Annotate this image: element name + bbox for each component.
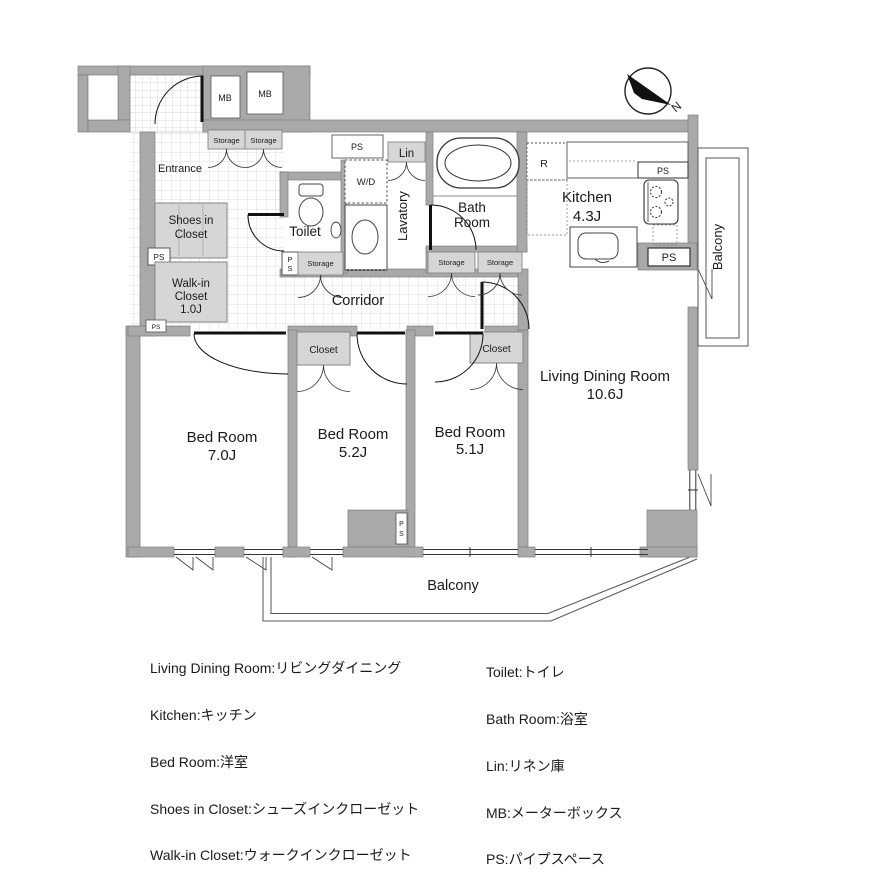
lin-label: Lin (399, 148, 414, 160)
bed1-door-arc (194, 334, 288, 374)
hand-basin (331, 222, 341, 238)
shoes-closet-label-2: Closet (175, 229, 208, 241)
wall-left (140, 132, 155, 330)
legend-item: Living Dining Room:リビングダイニング (150, 661, 419, 677)
storage-label: Storage (487, 258, 513, 267)
entrance-porch-floor (130, 75, 203, 132)
balcony-bottom-outer (263, 557, 697, 621)
ps-p: P (399, 521, 404, 528)
ps-p: P (287, 255, 292, 264)
legend-item: PS:パイプスペース (486, 852, 622, 868)
shoes-closet-label-1: Shoes in (169, 215, 214, 227)
bed1-label-1: Bed Room (187, 429, 258, 446)
ldr-label-2: 10.6J (587, 386, 624, 403)
toilet-label: Toilet (289, 224, 321, 239)
legend-item: Kitchen:キッチン (150, 708, 419, 724)
hall-floor (230, 132, 284, 273)
bath-label-1: Bath (458, 200, 486, 215)
bath-room: Bath Room (433, 138, 519, 230)
balcony-bottom-inner (271, 557, 689, 614)
kitchen-label-2: 4.3J (573, 208, 601, 225)
wall (88, 120, 130, 132)
wall-bottom (343, 547, 423, 557)
wall-bottom (640, 547, 697, 557)
closet-label: Closet (309, 345, 338, 356)
legend-item: Bed Room:洋室 (150, 755, 419, 771)
counter-dashed (653, 225, 677, 245)
window-bed2 (310, 550, 343, 555)
alcove (88, 75, 118, 120)
closet-doors-arc (297, 365, 350, 392)
compass: N (625, 68, 684, 115)
storage-label: Storage (307, 259, 333, 268)
window-flap (698, 474, 711, 506)
window-bed3-sliding (423, 547, 518, 557)
wall-left-lower (126, 330, 140, 557)
wall-toilet-left (280, 172, 288, 217)
wall-bath-left-upper (426, 132, 433, 205)
entrance-label: Entrance (158, 163, 202, 175)
wall-bottom (518, 547, 535, 557)
window-ldr-sliding (535, 547, 648, 557)
ldr-label-1: Living Dining Room (540, 368, 670, 385)
balcony-bottom-label: Balcony (427, 578, 479, 594)
ps-label: PS (154, 253, 165, 262)
wall-right-lower (688, 307, 698, 470)
walkin-label-3: 1.0J (180, 304, 202, 316)
linen-doors-arc (388, 162, 425, 181)
wall (78, 75, 88, 132)
closet-label: Closet (482, 344, 511, 355)
toilet-room: Toilet (289, 184, 341, 239)
window-bed1-right (244, 550, 283, 555)
legend-item: Shoes in Closet:シューズインクローゼット (150, 802, 419, 818)
lavatory-sink (352, 220, 378, 254)
wall-bottom (283, 547, 310, 557)
wall-toilet-top (280, 172, 347, 180)
compass-arrow-icon (627, 74, 671, 105)
window-flap (312, 557, 332, 570)
hall-storages: Storage Storage (208, 130, 282, 149)
walkin-label-1: Walk-in (172, 278, 210, 290)
lavatory-label: Lavatory (395, 191, 410, 241)
mb-1-label: MB (218, 93, 232, 103)
window-flap (196, 557, 213, 570)
compass-n-label: N (669, 99, 685, 115)
legend-item: Lin:リネン庫 (486, 759, 622, 775)
legend-left-column: Living Dining Room:リビングダイニング Kitchen:キッチ… (150, 630, 419, 872)
legend-item: Toilet:トイレ (486, 665, 622, 681)
ps-s: S (399, 531, 404, 538)
legend-item: Walk-in Closet:ウォークインクローゼット (150, 848, 419, 864)
wall-bath-right (517, 132, 527, 252)
wall-bed1-bed2 (288, 330, 297, 557)
storage-label: Storage (438, 258, 464, 267)
bed2-label-1: Bed Room (318, 426, 389, 443)
mb-2-label: MB (258, 89, 272, 99)
bed3-label-2: 5.1J (456, 441, 484, 458)
fridge-label: R (540, 158, 548, 170)
wall-bottom (128, 547, 174, 557)
storage-label: Storage (213, 136, 239, 145)
wall-bottom (215, 547, 244, 557)
ps-label: PS (351, 142, 363, 152)
ps-s: S (287, 264, 292, 273)
kitchen-label-1: Kitchen (562, 189, 612, 206)
window-ldr-side (688, 470, 698, 510)
bed1-label-2: 7.0J (208, 447, 236, 464)
bathtub-inner (445, 145, 511, 181)
corridor-label: Corridor (332, 293, 385, 309)
walkin-label-2: Closet (175, 291, 208, 303)
bath-label-2: Room (454, 215, 490, 230)
ps-label: PS (662, 252, 677, 264)
wd-label: W/D (357, 177, 376, 188)
storage-label: Storage (250, 136, 276, 145)
kitchen: R PS PS Kitchen 4.3J (527, 142, 690, 267)
legend-right-column: Toilet:トイレ Bath Room:浴室 Lin:リネン庫 MB:メーター… (486, 634, 622, 872)
ps-label: PS (152, 324, 161, 331)
legend-item: Bath Room:浴室 (486, 712, 622, 728)
ps-label: PS (657, 166, 669, 176)
closet-doors-arc (470, 363, 523, 390)
window-flap (176, 557, 193, 570)
bed3-label-1: Bed Room (435, 424, 506, 441)
wall-bath-bottom (426, 246, 527, 252)
balcony-right-label: Balcony (710, 223, 725, 270)
toilet-tank (299, 184, 323, 196)
wall (518, 269, 528, 330)
wall (118, 66, 130, 120)
bed2-door-arc (357, 334, 407, 384)
kitchen-sink (578, 233, 618, 259)
balcony-door-flap (698, 269, 712, 299)
ps-strip (396, 513, 407, 544)
legend-item: MB:メーターボックス (486, 806, 622, 822)
floorplan-drawing: MB MB Storage Storage Shoes in Closet PS… (0, 0, 872, 630)
bed2-label-2: 5.2J (339, 444, 367, 461)
floorplan-page: MB MB Storage Storage Shoes in Closet PS… (0, 0, 872, 872)
window-bed1-left (174, 550, 215, 555)
toilet-bowl (299, 198, 323, 226)
